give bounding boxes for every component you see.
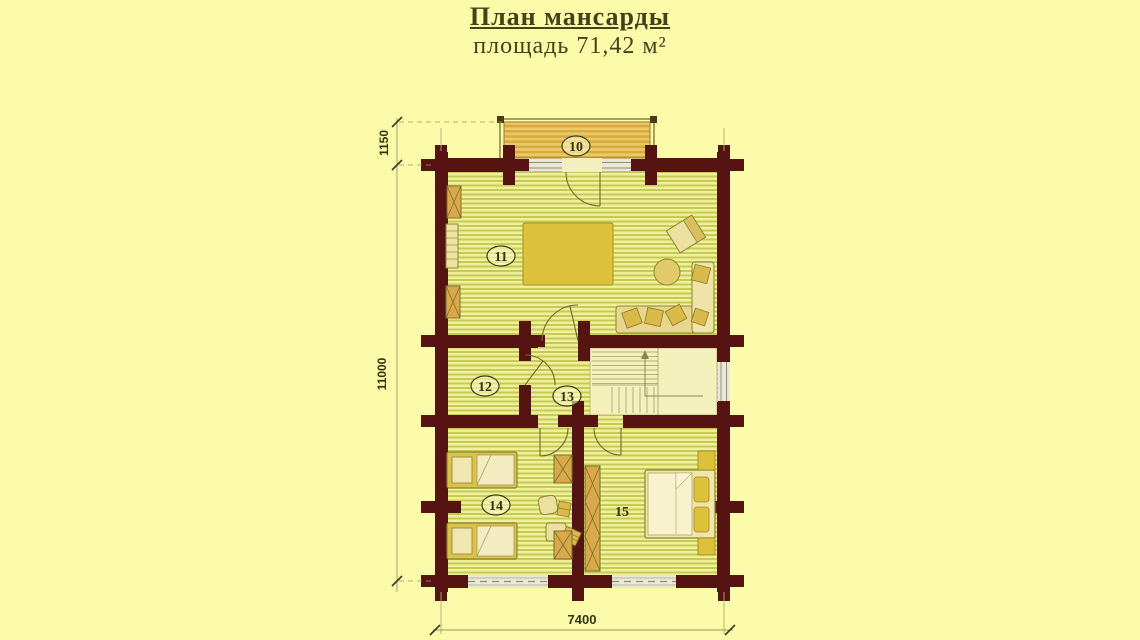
room-label-14: 14 (482, 495, 510, 515)
floor-plan-drawing: 10 11 12 13 14 15 (0, 0, 1140, 640)
single-bed (447, 523, 517, 559)
window (612, 575, 676, 588)
double-bed (645, 470, 715, 538)
svg-text:11: 11 (494, 250, 507, 265)
wardrobe (446, 286, 460, 318)
table (523, 223, 613, 285)
balcony-door-threshold (562, 158, 602, 172)
pillow (694, 507, 709, 532)
round-table (654, 259, 680, 285)
wall-room12-lower (519, 385, 531, 426)
room-label-10: 10 (562, 136, 590, 156)
svg-text:15: 15 (615, 505, 629, 520)
stairwell-floor (590, 348, 717, 415)
width-dimension: 7400 (568, 612, 597, 627)
room-label-12: 12 (471, 376, 499, 396)
svg-text:13: 13 (560, 390, 574, 405)
desk (557, 501, 571, 517)
single-bed (447, 452, 517, 488)
dresser (446, 224, 458, 268)
svg-text:12: 12 (478, 380, 492, 395)
wardrobe-column (585, 466, 600, 571)
chair (538, 495, 559, 516)
svg-text:14: 14 (489, 499, 503, 514)
pillow (694, 477, 709, 502)
window (718, 362, 730, 402)
window (468, 575, 548, 588)
floor-plan-page: План мансарды площадь 71,42 м² (0, 0, 1140, 640)
wardrobe (554, 455, 572, 483)
wardrobe (554, 531, 572, 559)
side-length-dimension: 11000 (375, 357, 389, 390)
nightstand (698, 538, 715, 555)
nightstand (698, 451, 715, 470)
room-label-15: 15 (615, 505, 629, 520)
room-label-11: 11 (487, 246, 515, 266)
balcony-depth-dimension: 1150 (377, 130, 391, 156)
balcony-post (650, 116, 657, 123)
wall-stair-stub (578, 321, 590, 361)
svg-text:10: 10 (569, 140, 583, 155)
wardrobe (447, 186, 461, 218)
room-label-13: 13 (553, 386, 581, 406)
